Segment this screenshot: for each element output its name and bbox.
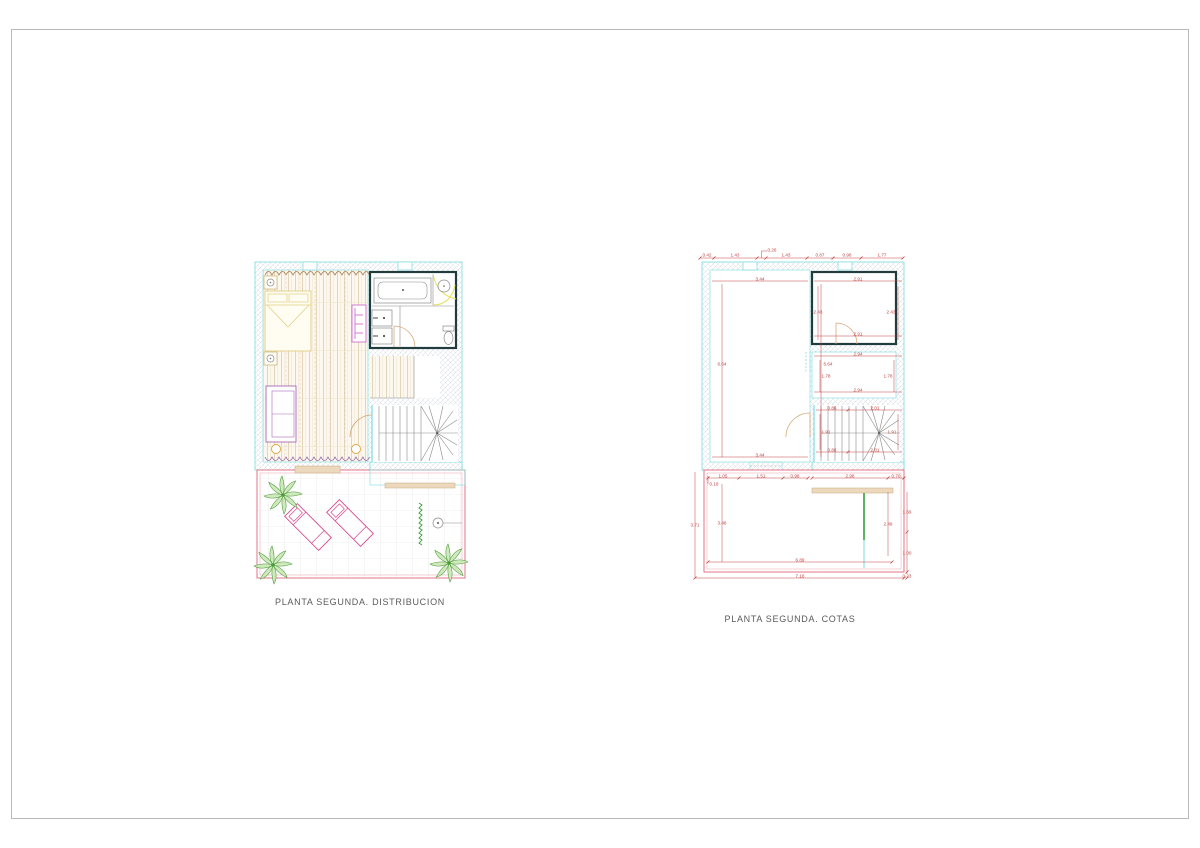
drawing-sheet: 0.421.430.261.430.870.981.773.442.912.43… — [0, 0, 1200, 848]
plan-title-distribucion: PLANTA SEGUNDA. DISTRIBUCION — [275, 597, 445, 607]
terrace — [704, 470, 904, 572]
sink — [372, 328, 392, 344]
toilet — [443, 326, 454, 345]
stair-well — [814, 405, 900, 462]
door-step — [295, 466, 340, 473]
terrace-bench — [385, 483, 455, 488]
bedroom — [710, 270, 810, 462]
stair-well — [372, 405, 458, 462]
bathtub — [374, 278, 431, 303]
plan-cotas: 0.421.430.261.430.870.981.773.442.912.43… — [688, 244, 920, 590]
dressing-room — [812, 352, 896, 398]
sink — [372, 310, 392, 326]
landing-planks — [370, 356, 414, 398]
terrace-bench — [812, 488, 893, 493]
plan-title-cotas: PLANTA SEGUNDA. COTAS — [725, 614, 856, 624]
wardrobe — [352, 305, 366, 342]
side-table — [352, 445, 361, 454]
plan-cotas-drawing — [688, 244, 920, 590]
side-table — [272, 445, 281, 454]
plan-distribucion-drawing — [253, 255, 468, 585]
plan-distribucion — [253, 255, 468, 585]
bathroom — [370, 272, 456, 348]
terrace — [254, 466, 468, 584]
sofa — [266, 386, 296, 442]
sheet-border — [11, 29, 1189, 819]
